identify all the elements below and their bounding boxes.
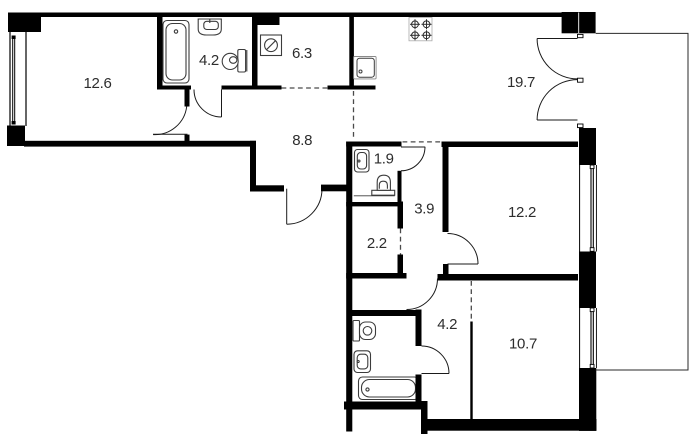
svg-text:4.2: 4.2 <box>437 316 457 333</box>
svg-text:1.9: 1.9 <box>374 150 394 167</box>
svg-text:10.7: 10.7 <box>509 335 537 352</box>
svg-text:4.2: 4.2 <box>199 52 219 69</box>
svg-text:12.6: 12.6 <box>84 75 112 92</box>
svg-text:2.2: 2.2 <box>367 235 387 252</box>
svg-text:19.7: 19.7 <box>507 74 535 91</box>
svg-text:12.2: 12.2 <box>508 204 536 221</box>
svg-text:6.3: 6.3 <box>292 45 312 62</box>
svg-text:3.9: 3.9 <box>414 201 434 218</box>
svg-text:8.8: 8.8 <box>292 132 312 149</box>
